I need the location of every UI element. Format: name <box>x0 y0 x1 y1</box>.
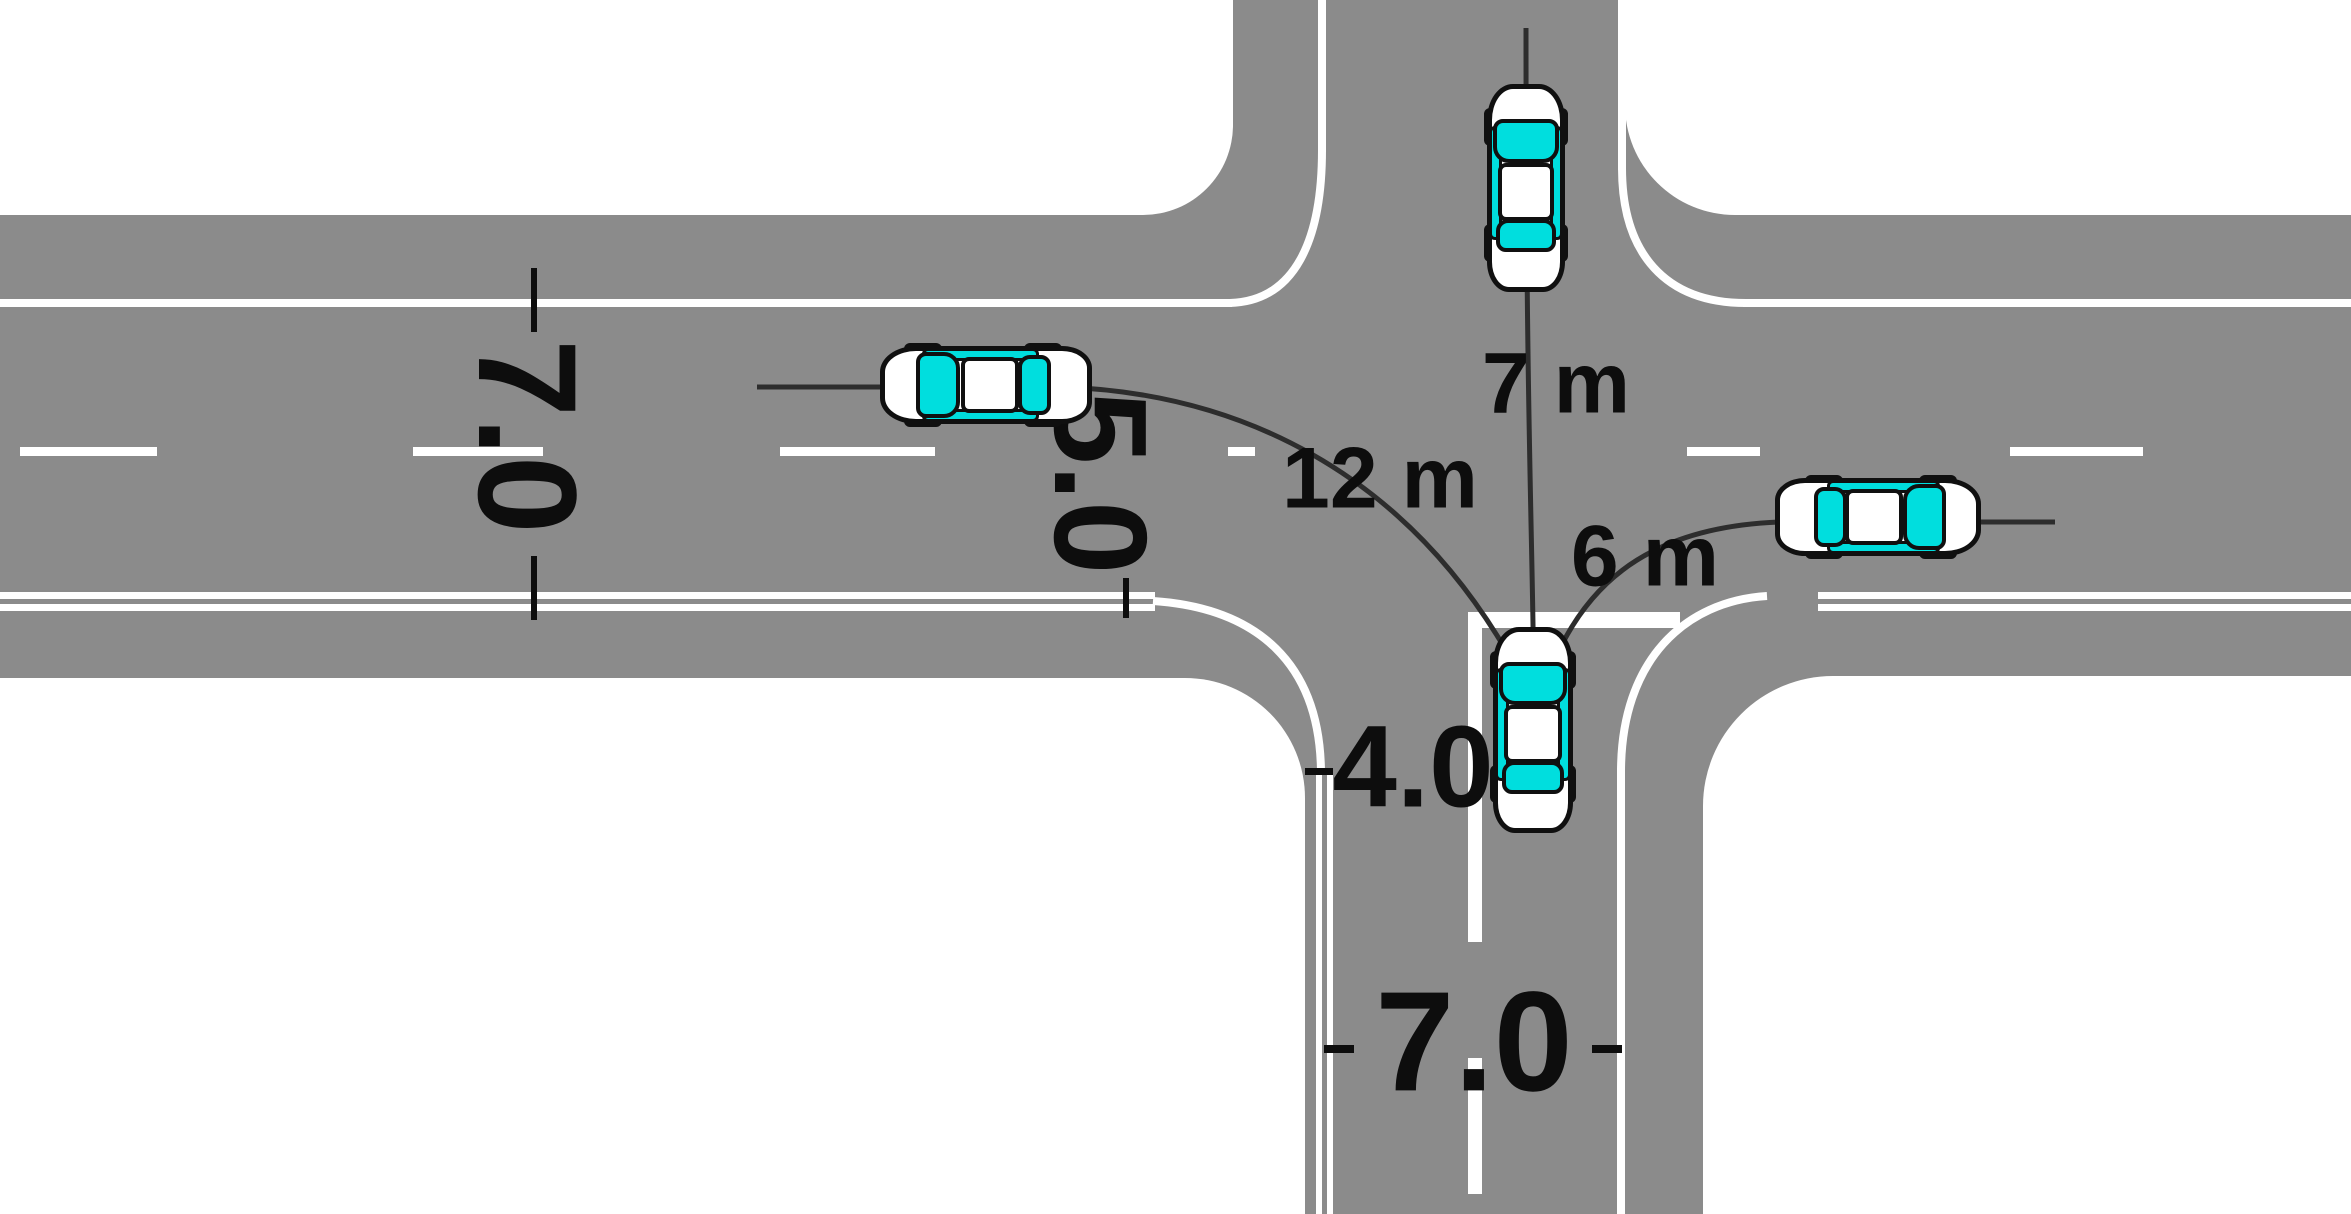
label-exit-lane-width: 4.0 <box>1332 708 1493 824</box>
label-left-turn-distance: 12 m <box>1282 436 1478 522</box>
label-west-road-width: 7.0 <box>457 339 597 534</box>
car-roof <box>961 357 1020 413</box>
dimension-tick <box>531 268 537 332</box>
curves-layer <box>0 0 2351 1214</box>
car-windshield <box>916 352 960 418</box>
dimension-tick <box>1592 1045 1622 1053</box>
car-windshield <box>1903 484 1946 550</box>
car-windshield <box>1493 119 1559 162</box>
car-roof <box>1845 489 1902 545</box>
car-rear-window <box>1502 761 1564 794</box>
car-straight-result <box>1487 84 1565 292</box>
car-rear-window <box>1814 487 1847 548</box>
corner-arc-nw <box>1230 150 1322 303</box>
label-straight-distance: 7 m <box>1482 341 1630 427</box>
label-right-turn-distance: 6 m <box>1571 514 1719 600</box>
corner-arc-ne <box>1622 168 1746 303</box>
intersection-diagram: 7.0 5.0 4.0 7.0 7 m 12 m 6 m <box>0 0 2351 1214</box>
car-south-approach <box>1493 627 1573 833</box>
car-rear-window <box>1018 355 1051 416</box>
car-roof <box>1504 705 1562 762</box>
car-rear-window <box>1496 219 1557 252</box>
dimension-tick <box>1123 578 1129 618</box>
dimension-tick <box>1305 768 1333 775</box>
car-windshield <box>1499 662 1566 705</box>
dimension-tick <box>531 556 537 620</box>
dimension-tick <box>1324 1045 1354 1053</box>
car-roof <box>1498 163 1554 221</box>
label-south-road-width: 7.0 <box>1375 971 1572 1113</box>
car-right-turn-result <box>1775 478 1981 556</box>
corner-arc-se <box>1621 596 1767 772</box>
corner-arc-sw <box>1153 601 1321 772</box>
car-left-turn-result <box>880 346 1092 424</box>
